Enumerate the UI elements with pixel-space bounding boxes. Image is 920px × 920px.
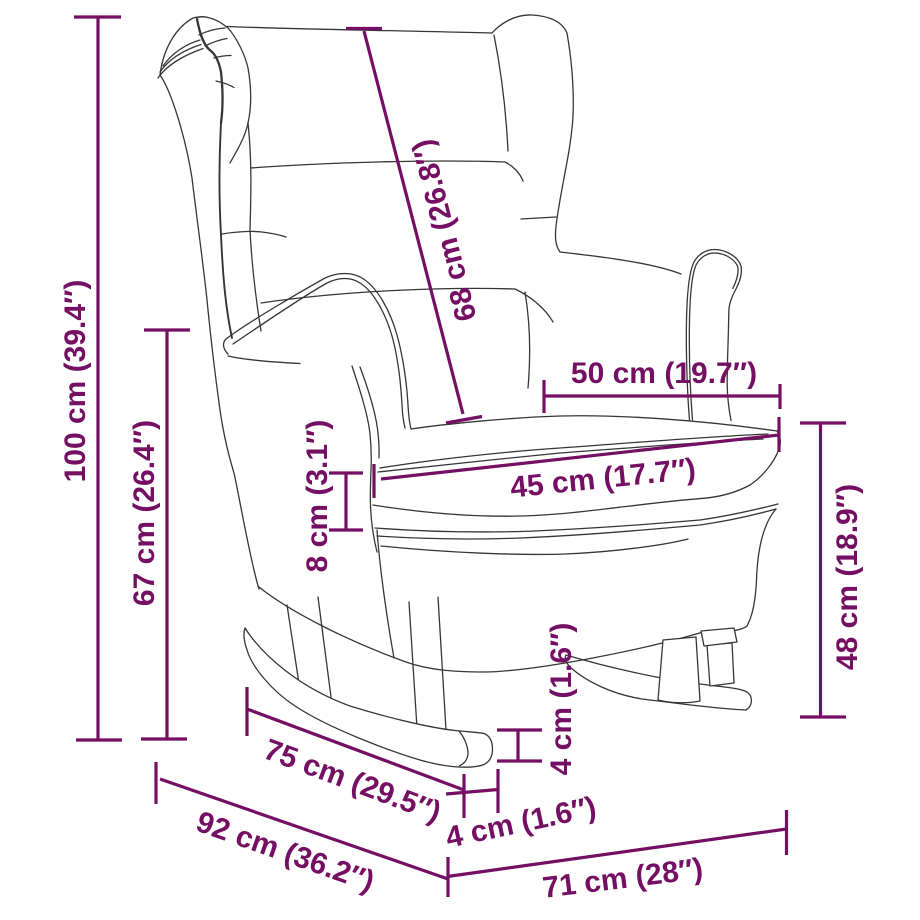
svg-text:8 cm (3.1″): 8 cm (3.1″) — [301, 420, 334, 573]
svg-text:4 cm (1.6″): 4 cm (1.6″) — [545, 623, 578, 776]
svg-text:4 cm (1.6″): 4 cm (1.6″) — [443, 791, 599, 855]
svg-text:100 cm (39.4″): 100 cm (39.4″) — [59, 280, 92, 483]
svg-text:48 cm (18.9″): 48 cm (18.9″) — [831, 484, 864, 670]
svg-text:50 cm (19.7″): 50 cm (19.7″) — [571, 357, 757, 390]
svg-text:67 cm (26.4″): 67 cm (26.4″) — [128, 420, 161, 606]
svg-text:92 cm (36.2″): 92 cm (36.2″) — [192, 805, 378, 898]
svg-text:68 cm (26.8″): 68 cm (26.8″) — [406, 136, 483, 325]
